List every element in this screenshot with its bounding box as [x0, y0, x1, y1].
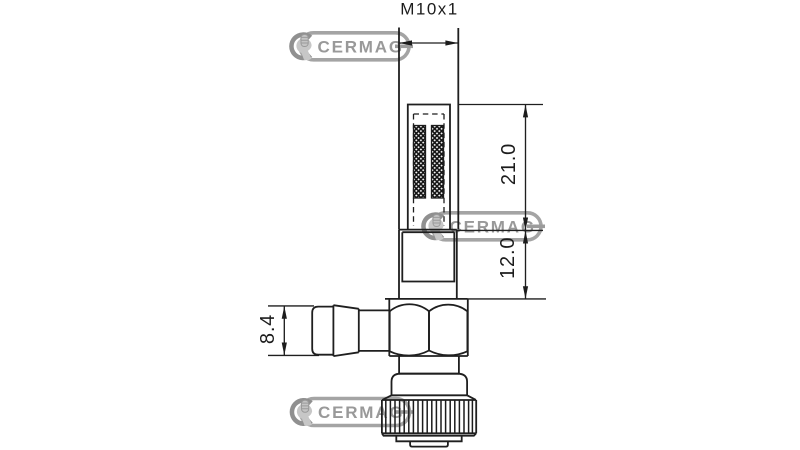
svg-text:8.4: 8.4	[257, 314, 279, 344]
svg-text:21.0: 21.0	[498, 143, 520, 185]
svg-text:12.0: 12.0	[497, 237, 519, 279]
svg-text:M10x1: M10x1	[400, 0, 459, 18]
